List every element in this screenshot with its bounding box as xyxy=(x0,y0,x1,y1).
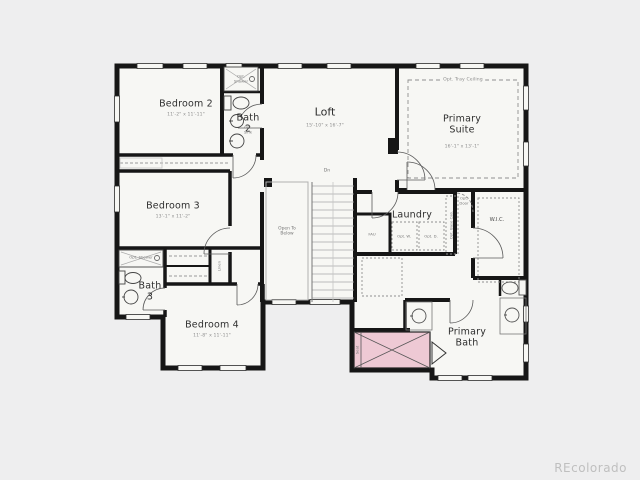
bath3-label: Bath 3 xyxy=(137,281,163,304)
highlighted-shower xyxy=(354,332,430,368)
floor-plan-drawing xyxy=(0,0,640,480)
bath3-sink xyxy=(124,290,138,304)
laundry-label: Laundry xyxy=(392,209,432,220)
primary-toilet-tank xyxy=(519,280,526,295)
bath2-tub-opt-shower-label: Opt. Shower xyxy=(230,74,252,83)
bedroom2-dims: 11'-2" x 11'-11" xyxy=(167,112,205,118)
primary-bath-sink-left xyxy=(412,309,426,323)
primary-toilet-bowl xyxy=(502,282,518,294)
recolorado-watermark: REcolorado xyxy=(554,461,627,475)
fau-label: FAU xyxy=(368,233,375,238)
bedroom2-label: Bedroom 2 xyxy=(159,98,213,109)
opt-door-label: Opt. Door xyxy=(456,196,472,205)
opt-dryer-label: Opt. D. xyxy=(424,235,437,240)
bath2-toilet-tank xyxy=(224,96,231,110)
bath3-tub-opt-shower-label: Opt. Shower xyxy=(129,256,152,261)
opt-washer-label: Opt. W. xyxy=(397,235,411,240)
bedroom4-dims: 11'-8" x 11'-11" xyxy=(193,333,231,339)
floor-plan-page: Bedroom 2 11'-2" x 11'-11" Bath 2 Opt. S… xyxy=(0,0,640,480)
linen-label: Linen xyxy=(218,261,223,271)
wall-post xyxy=(388,138,398,154)
opt-sink-label: Opt. Sink xyxy=(242,125,254,134)
stairs-dn-label: Dn xyxy=(324,168,330,174)
opt-tray-ceiling-label: Opt. Tray Ceiling xyxy=(441,77,485,83)
primary-bath-label: Primary Bath xyxy=(443,327,491,350)
open-to-below-label: Open To Below xyxy=(272,227,302,238)
bedroom4-label: Bedroom 4 xyxy=(185,319,239,330)
opt-cabinet-label: Opt. Base Cab. xyxy=(450,211,455,239)
loft-dims: 15'-10" x 16'-7" xyxy=(306,123,344,129)
primary-bath-sink-right xyxy=(505,308,519,322)
bedroom3-dims: 13'-1" x 11'-2" xyxy=(156,214,191,220)
bedroom3-label: Bedroom 3 xyxy=(146,200,200,211)
primary-suite-label: Primary Suite xyxy=(438,114,486,137)
shower-seat-label: Seat xyxy=(356,346,361,355)
bath2-toilet-bowl xyxy=(233,97,249,109)
bath3-toilet-tank xyxy=(119,271,125,284)
primary-suite-dims: 16'-1" x 13'-1" xyxy=(445,144,480,150)
loft-label: Loft xyxy=(315,105,336,118)
wic-label: W.I.C. xyxy=(490,217,505,223)
